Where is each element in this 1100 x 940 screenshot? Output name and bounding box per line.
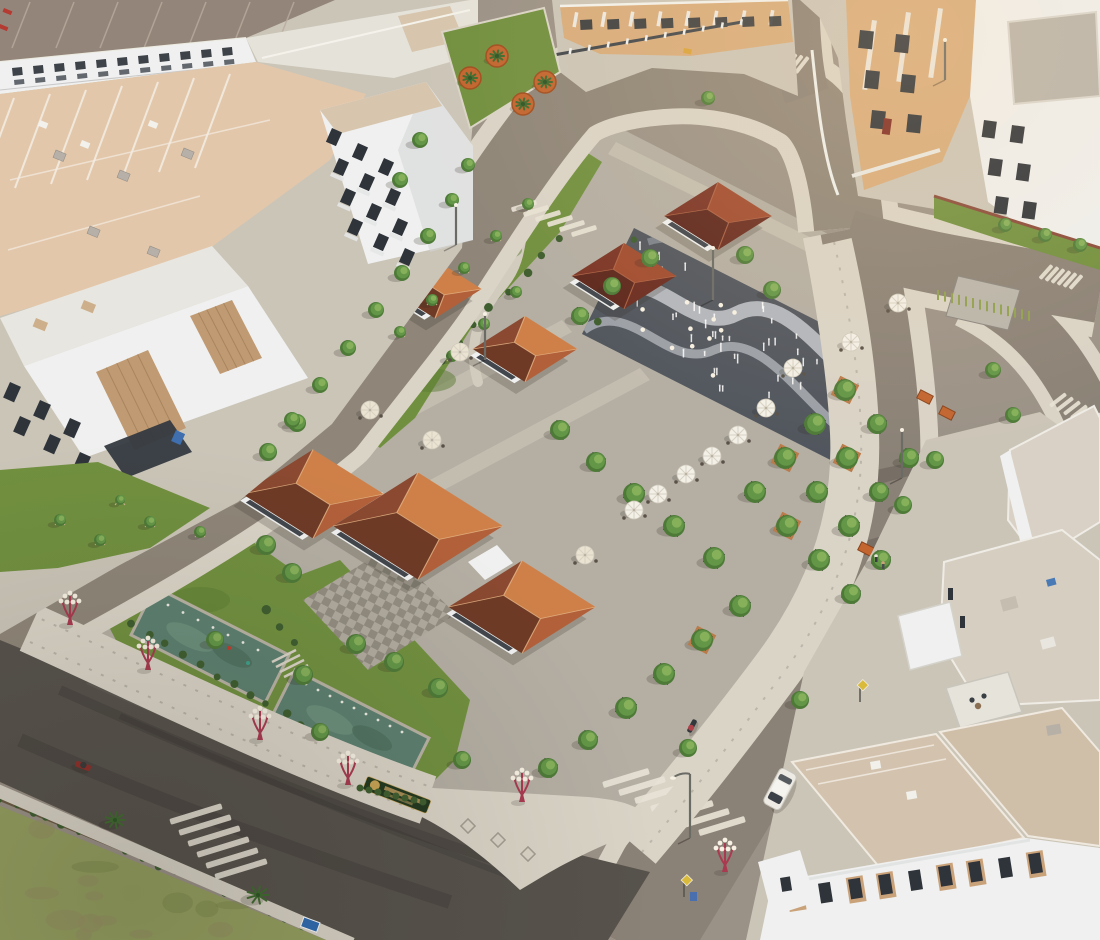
vignette [0,0,1100,940]
screenshot-root: Aerial golden-hour photograph of a new r… [0,0,1100,940]
lighting-overlay [0,0,1100,940]
aerial-photo: Aerial golden-hour photograph of a new r… [0,0,1100,940]
